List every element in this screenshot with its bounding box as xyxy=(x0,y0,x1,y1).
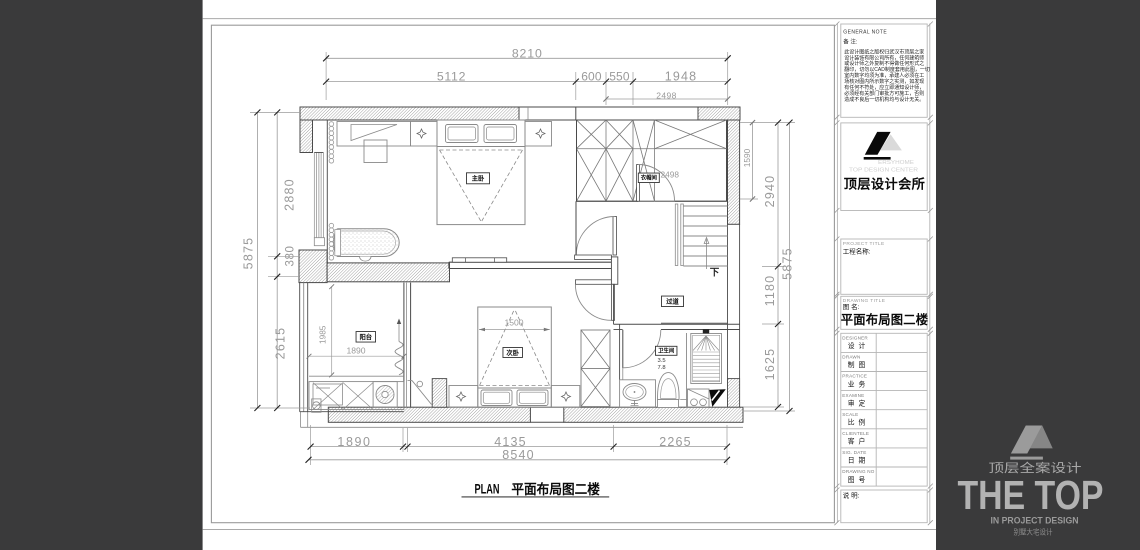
svg-text:客 户: 客 户 xyxy=(848,437,866,446)
svg-text:工程名称:: 工程名称: xyxy=(843,247,871,256)
svg-text:SIG. DATE: SIG. DATE xyxy=(842,450,866,455)
svg-text:1500: 1500 xyxy=(504,318,523,328)
svg-text:2880: 2880 xyxy=(282,178,296,211)
svg-text:日 期: 日 期 xyxy=(848,457,866,465)
svg-text:5875: 5875 xyxy=(780,247,794,280)
svg-text:审 定: 审 定 xyxy=(848,398,866,407)
svg-text:业 务: 业 务 xyxy=(848,379,866,388)
svg-text:2940: 2940 xyxy=(763,175,777,208)
svg-text:8540: 8540 xyxy=(502,448,535,462)
svg-text:PRACTICE: PRACTICE xyxy=(842,374,867,379)
svg-text:3.5: 3.5 xyxy=(658,358,666,364)
svg-text:备 注:: 备 注: xyxy=(843,38,858,46)
svg-text:2265: 2265 xyxy=(659,435,692,449)
svg-text:图 号: 图 号 xyxy=(848,476,866,484)
svg-text:次卧: 次卧 xyxy=(506,348,519,357)
svg-text:造成不良后一切机构均与设计无关。: 造成不良后一切机构均与设计无关。 xyxy=(844,96,924,103)
svg-text:4135: 4135 xyxy=(494,435,527,449)
svg-text:设 计: 设 计 xyxy=(848,341,866,350)
svg-text:图 名:: 图 名: xyxy=(843,302,860,311)
svg-text:顶层设计会所: 顶层设计会所 xyxy=(844,176,926,192)
svg-text:设计装饰有限公司所有，任何建筑师: 设计装饰有限公司所有，任何建筑师 xyxy=(844,54,924,61)
svg-text:主卧: 主卧 xyxy=(472,174,485,183)
svg-text:PROJECT TITLE: PROJECT TITLE xyxy=(843,241,885,247)
svg-text:DRAWING NO: DRAWING NO xyxy=(842,469,874,474)
svg-text:ERSYHOME: ERSYHOME xyxy=(878,160,915,166)
svg-text:1180: 1180 xyxy=(763,275,777,307)
svg-text:DESIGNER: DESIGNER xyxy=(842,336,868,341)
svg-text:THE TOP: THE TOP xyxy=(958,472,1104,518)
svg-text:2498: 2498 xyxy=(661,170,680,180)
svg-text:必须经有关部门审批方可施工，否则: 必须经有关部门审批方可施工，否则 xyxy=(844,90,924,97)
svg-text:GENERAL NOTE: GENERAL NOTE xyxy=(843,30,887,36)
svg-text:此设计图纸之版权归武汉市顶层之家: 此设计图纸之版权归武汉市顶层之家 xyxy=(844,48,924,55)
svg-text:1890: 1890 xyxy=(337,435,371,449)
svg-text:1625: 1625 xyxy=(763,348,777,381)
svg-text:1948: 1948 xyxy=(665,70,698,84)
svg-text:SCALE: SCALE xyxy=(842,412,858,417)
svg-text:过道: 过道 xyxy=(666,297,679,306)
svg-text:室内数字均须为准，承建人必须在工: 室内数字均须为准，承建人必须在工 xyxy=(844,72,924,79)
svg-text:衣帽间: 衣帽间 xyxy=(641,174,658,182)
svg-text:制 图: 制 图 xyxy=(848,360,866,369)
svg-text:7.8: 7.8 xyxy=(658,365,666,371)
svg-text:DRAWN: DRAWN xyxy=(842,355,860,360)
svg-text:翻印，切勿以CAD制度套用此图，一切: 翻印，切勿以CAD制度套用此图，一切 xyxy=(844,66,930,73)
svg-text:下: 下 xyxy=(710,268,720,279)
svg-text:1890: 1890 xyxy=(346,346,365,356)
svg-text:1590: 1590 xyxy=(742,148,752,167)
svg-text:阳台: 阳台 xyxy=(360,332,373,341)
svg-text:PLAN: PLAN xyxy=(475,481,500,497)
svg-text:说 明:: 说 明: xyxy=(843,491,860,500)
svg-text:5112: 5112 xyxy=(437,70,466,84)
svg-text:CLIENTELE: CLIENTELE xyxy=(842,431,869,436)
svg-text:或设计师之外复制不得做任何形式之: 或设计师之外复制不得做任何形式之 xyxy=(844,60,924,67)
svg-text:有任何不符处，应立即通知设计师，: 有任何不符处，应立即通知设计师， xyxy=(844,84,924,91)
svg-text:别墅大宅设计: 别墅大宅设计 xyxy=(1014,527,1053,536)
svg-text:600: 600 xyxy=(581,70,602,84)
svg-text:比 例: 比 例 xyxy=(848,418,866,427)
svg-text:平面布局图二楼: 平面布局图二楼 xyxy=(511,481,600,497)
svg-text:场核对图内所示数字之实测，如发现: 场核对图内所示数字之实测，如发现 xyxy=(844,78,924,85)
svg-text:2615: 2615 xyxy=(273,327,287,360)
svg-text:EXAMINE: EXAMINE xyxy=(842,393,864,398)
svg-text:5875: 5875 xyxy=(241,237,255,270)
svg-text:TOP DESIGN CENTER: TOP DESIGN CENTER xyxy=(849,167,919,173)
svg-text:IN PROJECT DESIGN: IN PROJECT DESIGN xyxy=(991,514,1079,525)
svg-text:1985: 1985 xyxy=(318,325,328,344)
svg-text:550: 550 xyxy=(609,70,630,84)
svg-text:8210: 8210 xyxy=(512,46,543,60)
svg-text:卫生间: 卫生间 xyxy=(658,347,675,355)
svg-text:2498: 2498 xyxy=(656,91,677,101)
svg-text:平面布局图二楼: 平面布局图二楼 xyxy=(841,312,929,327)
svg-text:380: 380 xyxy=(284,246,296,267)
